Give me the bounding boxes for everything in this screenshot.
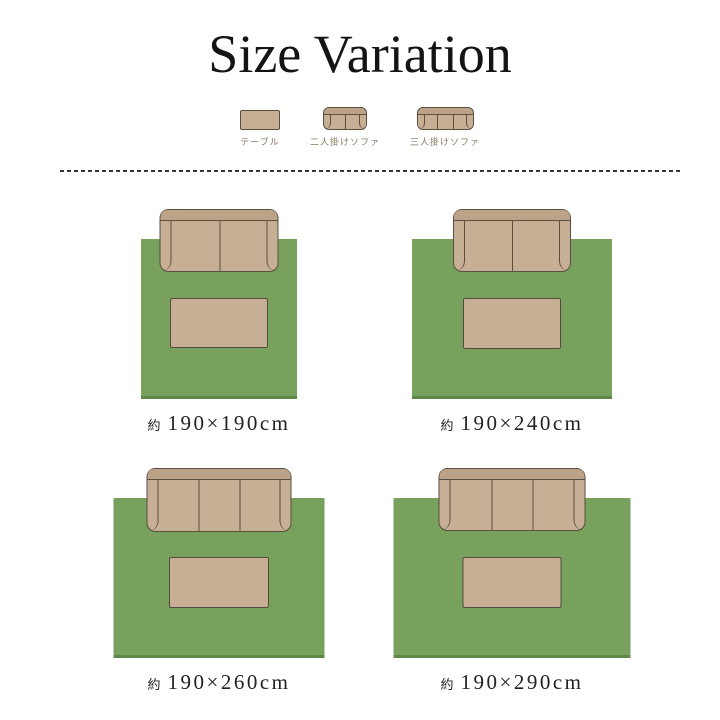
rug-diagram-190x190: 約190×190cm bbox=[99, 209, 339, 399]
size-value: 190×240cm bbox=[461, 411, 584, 435]
size-value: 190×290cm bbox=[461, 670, 584, 694]
approx-prefix: 約 bbox=[147, 418, 160, 433]
sofa-armrest-right bbox=[280, 480, 291, 531]
size-label: 約190×290cm bbox=[392, 670, 632, 695]
rug-diagram-190x260: 約190×260cm bbox=[99, 468, 339, 658]
dotted-divider bbox=[60, 170, 680, 172]
sofa-seat-divider bbox=[437, 115, 438, 129]
sofa-seat-divider bbox=[219, 221, 220, 271]
rug-diagram-190x240: 約190×240cm bbox=[392, 209, 632, 399]
legend: テーブル 二人掛けソファ bbox=[0, 106, 720, 148]
three-seat-sofa-icon bbox=[417, 107, 474, 130]
diagram-scene bbox=[99, 468, 339, 658]
sofa-seat-divider bbox=[239, 480, 240, 531]
size-value: 190×260cm bbox=[168, 670, 291, 694]
diagram-scene bbox=[392, 209, 632, 399]
legend-label-table: テーブル bbox=[240, 135, 279, 148]
two-seat-sofa-top-view bbox=[160, 209, 279, 272]
sofa-armrest-left bbox=[148, 480, 159, 531]
sofa-armrest-left bbox=[454, 221, 465, 271]
sofa-seat-divider bbox=[453, 115, 454, 129]
legend-label-three-seat-sofa: 三人掛けソファ bbox=[410, 135, 480, 148]
sofa-seat-divider bbox=[199, 480, 200, 531]
sofa-armrest-right bbox=[466, 115, 473, 129]
sofa-backrest bbox=[418, 108, 473, 115]
legend-label-two-seat-sofa: 二人掛けソファ bbox=[310, 135, 380, 148]
sofa-backrest bbox=[454, 210, 570, 221]
sofa-seat-divider bbox=[492, 480, 493, 530]
diagram-scene bbox=[99, 209, 339, 399]
legend-table-icon-slot bbox=[240, 106, 280, 130]
sofa-seat-divider bbox=[532, 480, 533, 530]
sofa-seat-divider bbox=[512, 221, 513, 271]
sofa-backrest bbox=[148, 469, 291, 480]
size-value: 190×190cm bbox=[168, 411, 291, 435]
sofa-armrest-left bbox=[324, 115, 331, 129]
diagram-scene bbox=[392, 468, 632, 658]
sofa-armrest-right bbox=[559, 221, 570, 271]
size-label: 約190×190cm bbox=[99, 411, 339, 436]
page-title: Size Variation bbox=[0, 26, 720, 83]
table-icon bbox=[240, 110, 280, 130]
legend-item-three-seat-sofa: 三人掛けソファ bbox=[410, 106, 480, 148]
sofa-backrest bbox=[161, 210, 278, 221]
sofa-seat-divider bbox=[345, 115, 346, 129]
two-seat-sofa-top-view bbox=[453, 209, 571, 272]
sofa-armrest-right bbox=[267, 221, 278, 271]
table-top-view bbox=[463, 298, 561, 349]
legend-two-seat-icon-slot bbox=[323, 106, 367, 130]
table-top-view bbox=[170, 298, 268, 348]
three-seat-sofa-top-view bbox=[439, 468, 586, 531]
approx-prefix: 約 bbox=[440, 677, 453, 692]
sofa-armrest-left bbox=[440, 480, 451, 530]
size-label: 約190×260cm bbox=[99, 670, 339, 695]
two-seat-sofa-icon bbox=[323, 107, 367, 130]
sofa-armrest-left bbox=[161, 221, 172, 271]
legend-item-two-seat-sofa: 二人掛けソファ bbox=[310, 106, 380, 148]
size-label: 約190×240cm bbox=[392, 411, 632, 436]
three-seat-sofa-top-view bbox=[147, 468, 292, 532]
approx-prefix: 約 bbox=[440, 418, 453, 433]
rug-diagram-190x290: 約190×290cm bbox=[392, 468, 632, 658]
size-variation-panel: Size Variation テーブル 二人掛けソファ bbox=[0, 0, 720, 720]
sofa-armrest-right bbox=[574, 480, 585, 530]
table-top-view bbox=[463, 557, 562, 608]
table-top-view bbox=[169, 557, 269, 608]
legend-three-seat-icon-slot bbox=[417, 106, 474, 130]
sofa-armrest-left bbox=[418, 115, 425, 129]
sofa-backrest bbox=[440, 469, 585, 480]
sofa-armrest-right bbox=[359, 115, 366, 129]
sofa-backrest bbox=[324, 108, 366, 115]
approx-prefix: 約 bbox=[147, 677, 160, 692]
legend-item-table: テーブル bbox=[240, 106, 280, 148]
